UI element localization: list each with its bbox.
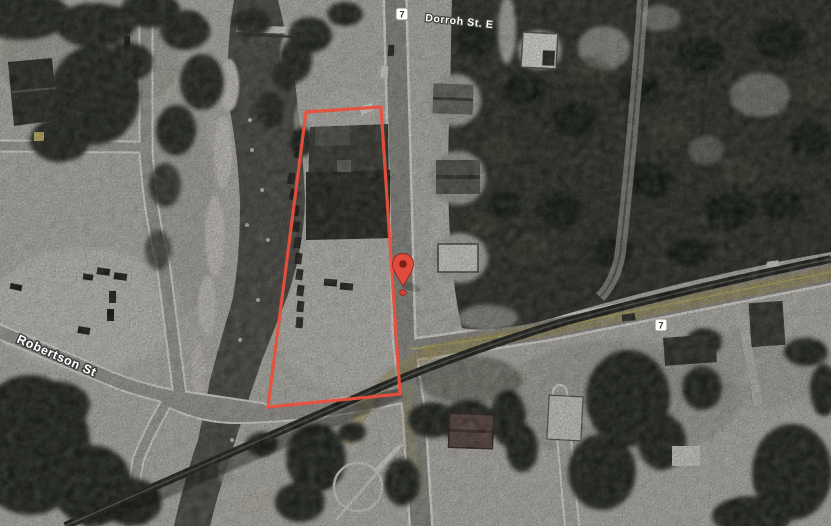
route-shield-top: 7 <box>396 8 408 20</box>
grain-highlight-overlay <box>0 0 831 526</box>
pin-center-dot <box>399 260 407 268</box>
route-shield-east: 7 <box>655 319 667 331</box>
pin-base-dot <box>400 289 406 295</box>
aerial-imagery <box>0 0 831 526</box>
satellite-map-canvas[interactable]: Dorroh St. E Robertson St 7 7 <box>0 0 831 526</box>
route-shield-number: 7 <box>658 321 663 331</box>
route-shield-number: 7 <box>399 10 404 20</box>
map-viewport[interactable]: Dorroh St. E Robertson St 7 7 <box>0 0 831 526</box>
